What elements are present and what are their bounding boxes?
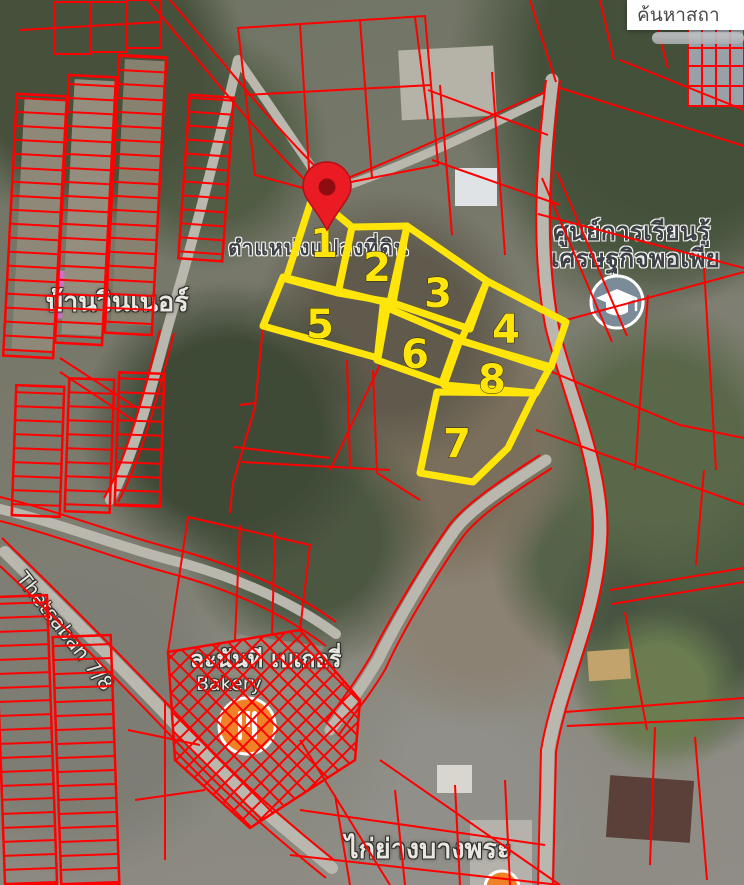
ladder-block bbox=[115, 372, 165, 506]
parcel-number-3: 3 bbox=[424, 271, 452, 317]
ladder-block bbox=[0, 595, 57, 885]
parcel-number-8: 8 bbox=[478, 357, 506, 403]
parcel-number-2: 2 bbox=[363, 245, 391, 291]
search-text: ค้นหาสถา bbox=[637, 0, 720, 30]
parcel-number-7: 7 bbox=[443, 421, 471, 467]
parcel-number-1: 1 bbox=[310, 221, 338, 267]
search-dropdown-partial[interactable] bbox=[652, 32, 744, 44]
ladder-block bbox=[12, 385, 65, 517]
cadastral-overlay: 1 2 3 4 5 6 7 8 bbox=[0, 0, 744, 885]
map-canvas[interactable]: ตำแหน่งแปลงที่ดิน บ้านวินเนอร์ ศูนย์การเ… bbox=[0, 0, 744, 885]
parcel-number-6: 6 bbox=[401, 332, 429, 378]
ladder-block bbox=[178, 95, 233, 262]
parcel-number-5: 5 bbox=[306, 302, 334, 348]
search-input[interactable]: ค้นหาสถา bbox=[627, 0, 744, 30]
parcel-number-4: 4 bbox=[492, 307, 520, 353]
cadastral-lines-topright bbox=[530, 0, 744, 342]
crosshatch-block bbox=[168, 630, 360, 828]
